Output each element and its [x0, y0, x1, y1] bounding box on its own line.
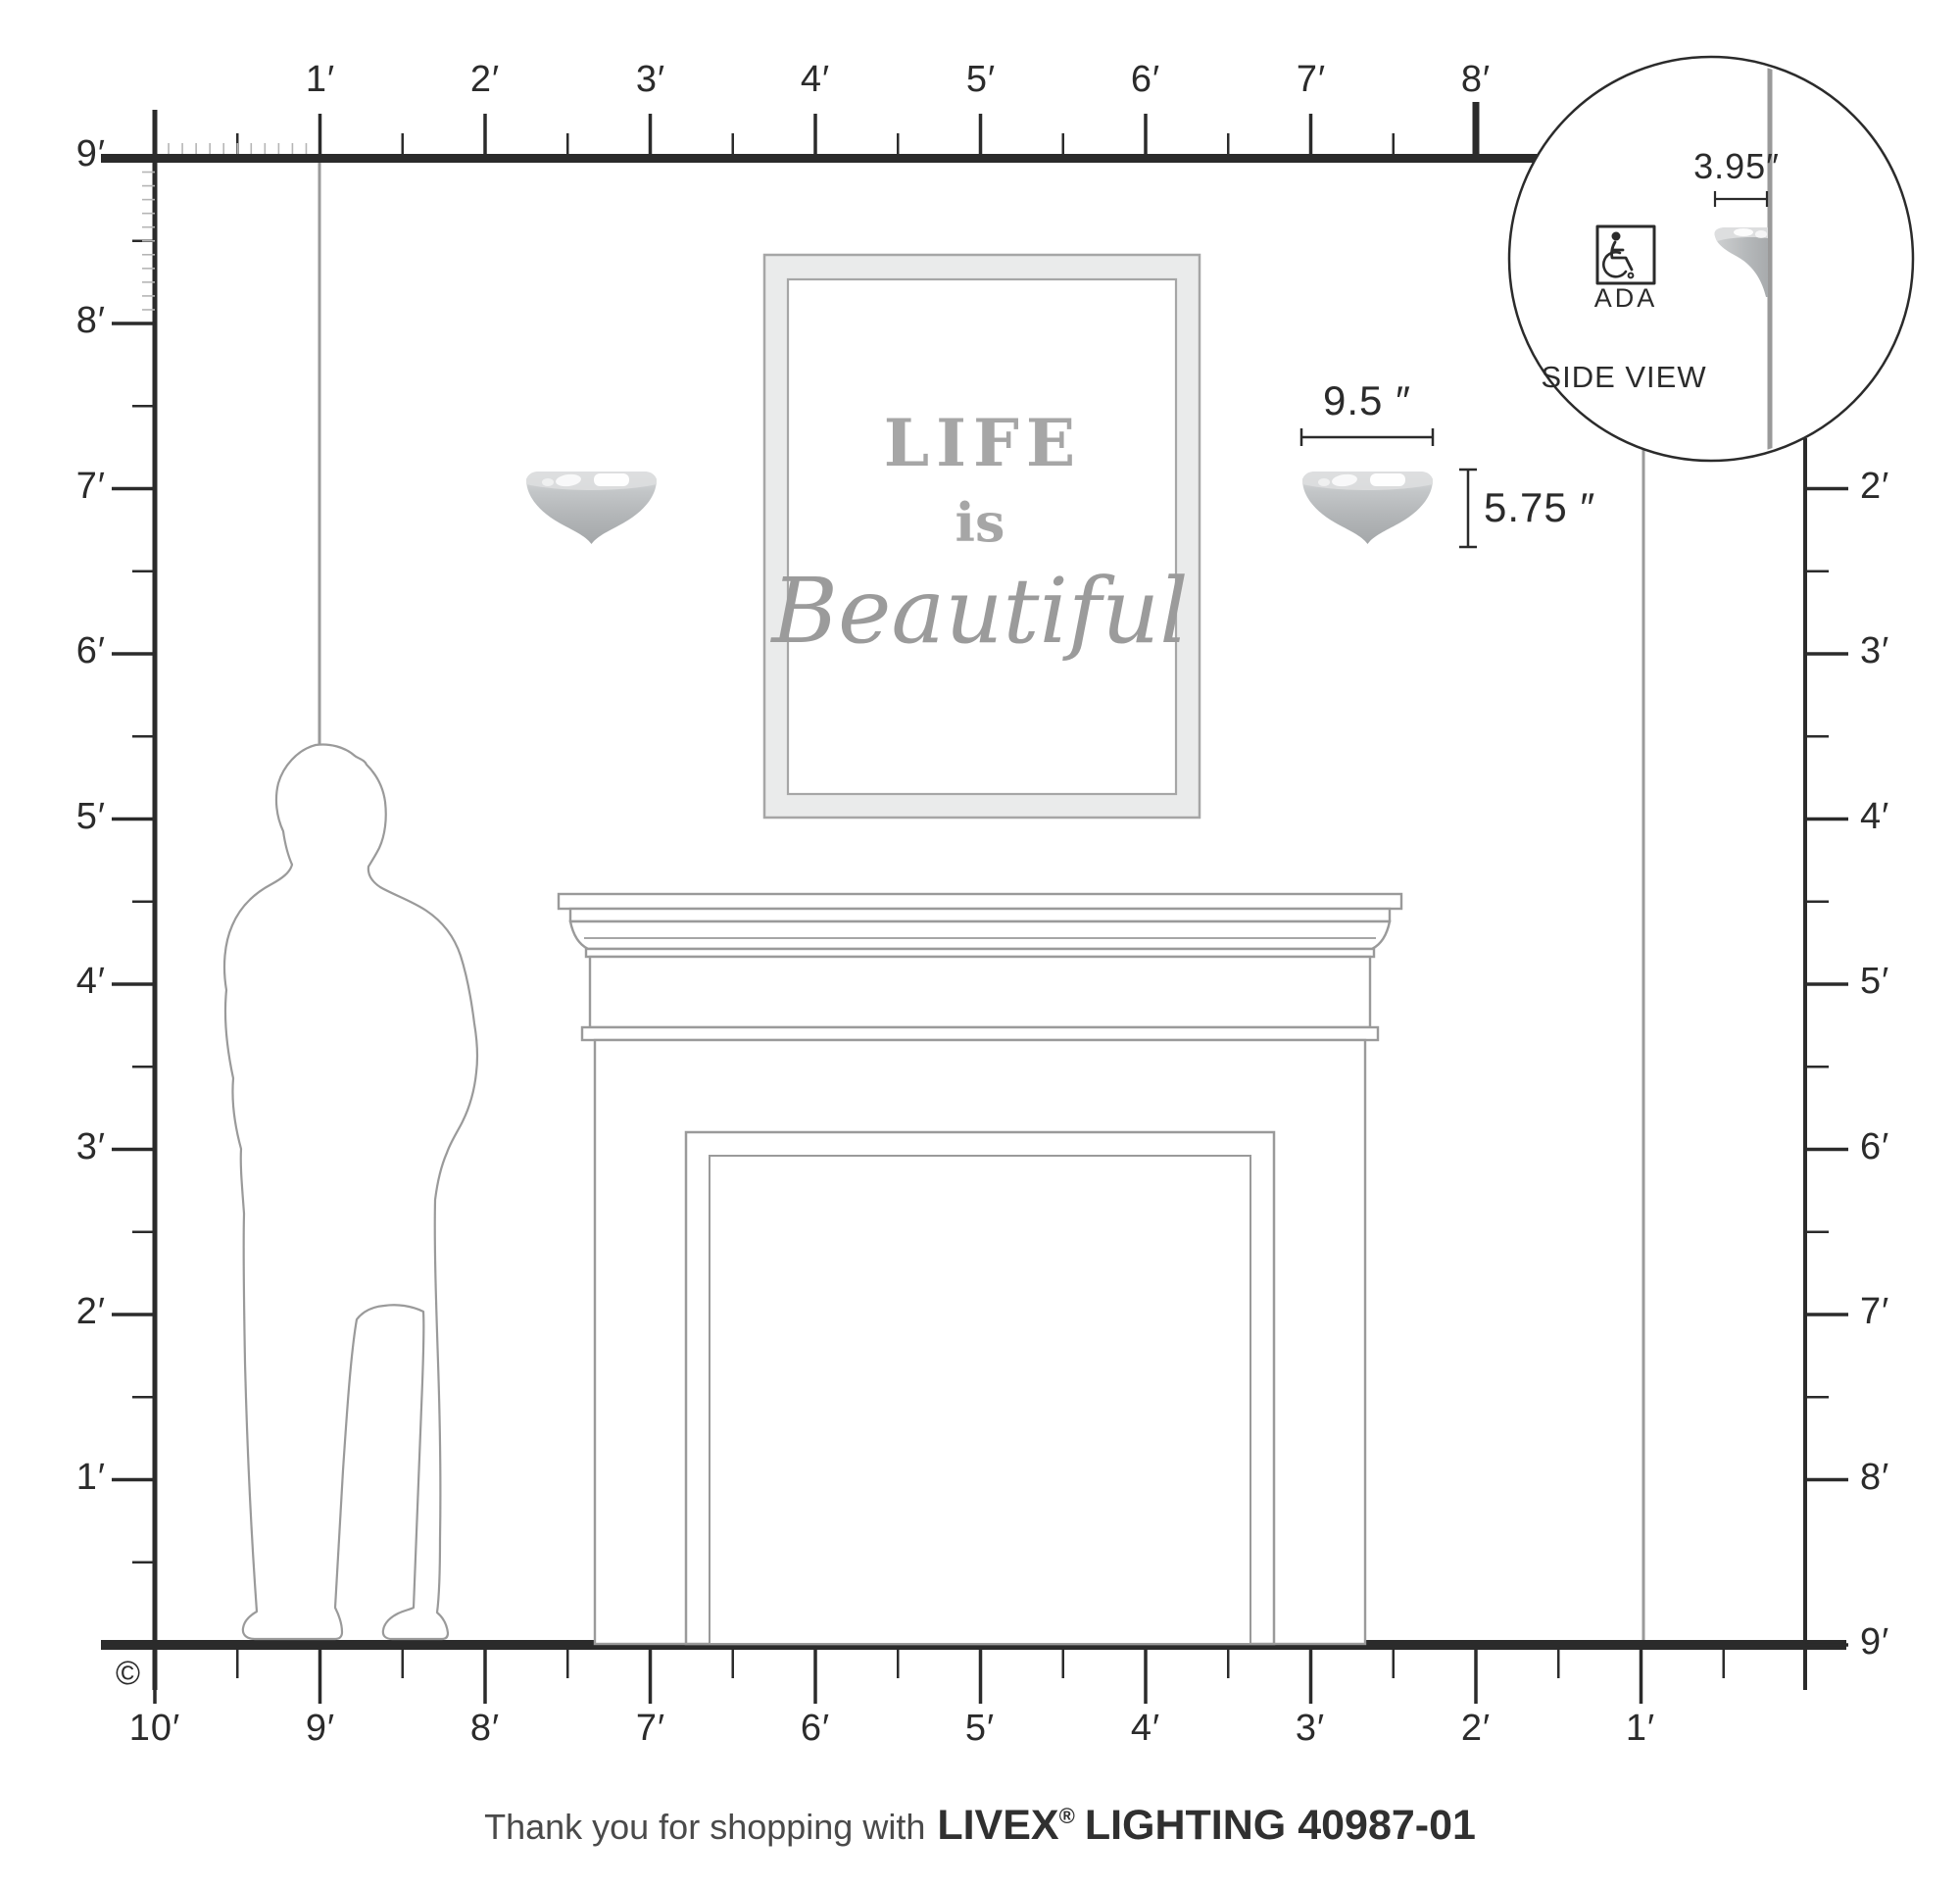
ruler-label: 1′: [306, 61, 335, 98]
copyright-symbol: ©: [116, 1657, 141, 1690]
ruler-label: 7′: [1297, 61, 1326, 98]
ruler-label: 5′: [965, 1710, 995, 1747]
artwork-text-life: LIFE: [884, 405, 1082, 481]
artwork-text-beautiful: Beautiful: [771, 559, 1188, 664]
mantel-cove: [570, 921, 1390, 949]
ruler-label: 10′: [129, 1710, 180, 1747]
ruler-label: 1′: [35, 1459, 106, 1496]
mantel-top-shelf: [559, 894, 1401, 909]
footer-product-number: LIGHTING 40987-01: [1085, 1802, 1476, 1849]
registered-trademark-icon: ®: [1059, 1804, 1075, 1828]
side-view-wall-line: [1768, 57, 1773, 455]
right-sconce: [1302, 472, 1433, 544]
ruler-label: 4′: [35, 963, 106, 1000]
footer-brand: LIVEX: [937, 1802, 1058, 1849]
ruler-label: 6′: [35, 632, 106, 670]
ruler-label: 6′: [1131, 61, 1160, 98]
sconce-side-highlight: [1755, 230, 1767, 238]
ada-label: ADA: [1594, 285, 1658, 312]
ruler-label: 2′: [1860, 468, 1889, 505]
ruler-label: 7′: [35, 468, 106, 505]
ruler-label: 7′: [1860, 1293, 1889, 1330]
sconce-depth-dimension: 3.95″: [1693, 149, 1780, 184]
ruler-label: 8′: [1461, 61, 1491, 98]
side-view-circle: [1509, 57, 1913, 461]
ruler-label: 9′: [306, 1710, 335, 1747]
ruler-label: 5′: [1860, 963, 1889, 1000]
ruler-label: 8′: [1860, 1459, 1889, 1496]
ruler-label: 9′: [35, 135, 106, 173]
footer-tagline: Thank you for shopping withLIVEX®LIGHTIN…: [0, 1802, 1960, 1850]
left-sconce: [526, 472, 657, 544]
scene-svg: [0, 0, 1960, 1887]
sconce-side-highlight: [1734, 228, 1753, 236]
ruler-label: 8′: [470, 1710, 500, 1747]
ruler-label: 2′: [35, 1293, 106, 1330]
person-silhouette: [224, 744, 477, 1639]
sconce-height-dimension: 5.75 ″: [1484, 487, 1595, 528]
ruler-label: 3′: [1296, 1710, 1325, 1747]
ruler-label: 3′: [35, 1128, 106, 1166]
artwork-text-is: is: [955, 491, 1005, 554]
side-view-inset: [1509, 57, 1913, 461]
mantel-second-shelf: [570, 909, 1390, 921]
ruler-label: 6′: [1860, 1128, 1889, 1166]
product-dimension-diagram: 1′ 2′ 3′ 4′ 5′ 6′ 7′ 8′ 9′ 8′ 7′ 6′ 5′ 4…: [0, 0, 1960, 1887]
ruler-label: 2′: [1461, 1710, 1491, 1747]
side-view-title: SIDE VIEW: [1541, 362, 1706, 392]
ruler-label: 6′: [801, 1710, 830, 1747]
firebox-inner: [710, 1156, 1250, 1644]
ruler-label: 5′: [966, 61, 996, 98]
ruler-label: 8′: [35, 302, 106, 339]
ruler-label: 4′: [1860, 798, 1889, 835]
ruler-label: 3′: [636, 61, 665, 98]
mantel-fillet: [586, 949, 1374, 957]
ruler-label: 7′: [636, 1710, 665, 1747]
ruler-label: 5′: [35, 798, 106, 835]
fireplace-mantel: [559, 894, 1401, 1644]
ruler-label: 4′: [801, 61, 830, 98]
mantel-frieze: [590, 957, 1370, 1027]
sconce-width-dimension: 9.5 ″: [1323, 380, 1411, 422]
ruler-label: 4′: [1131, 1710, 1160, 1747]
ruler-label: 3′: [1860, 632, 1889, 670]
ruler-label: 9′: [1860, 1623, 1889, 1661]
footer-prefix: Thank you for shopping with: [484, 1807, 925, 1847]
ruler-label: 1′: [1626, 1710, 1655, 1747]
ruler-label: 2′: [470, 61, 500, 98]
mantel-sill: [582, 1027, 1378, 1040]
